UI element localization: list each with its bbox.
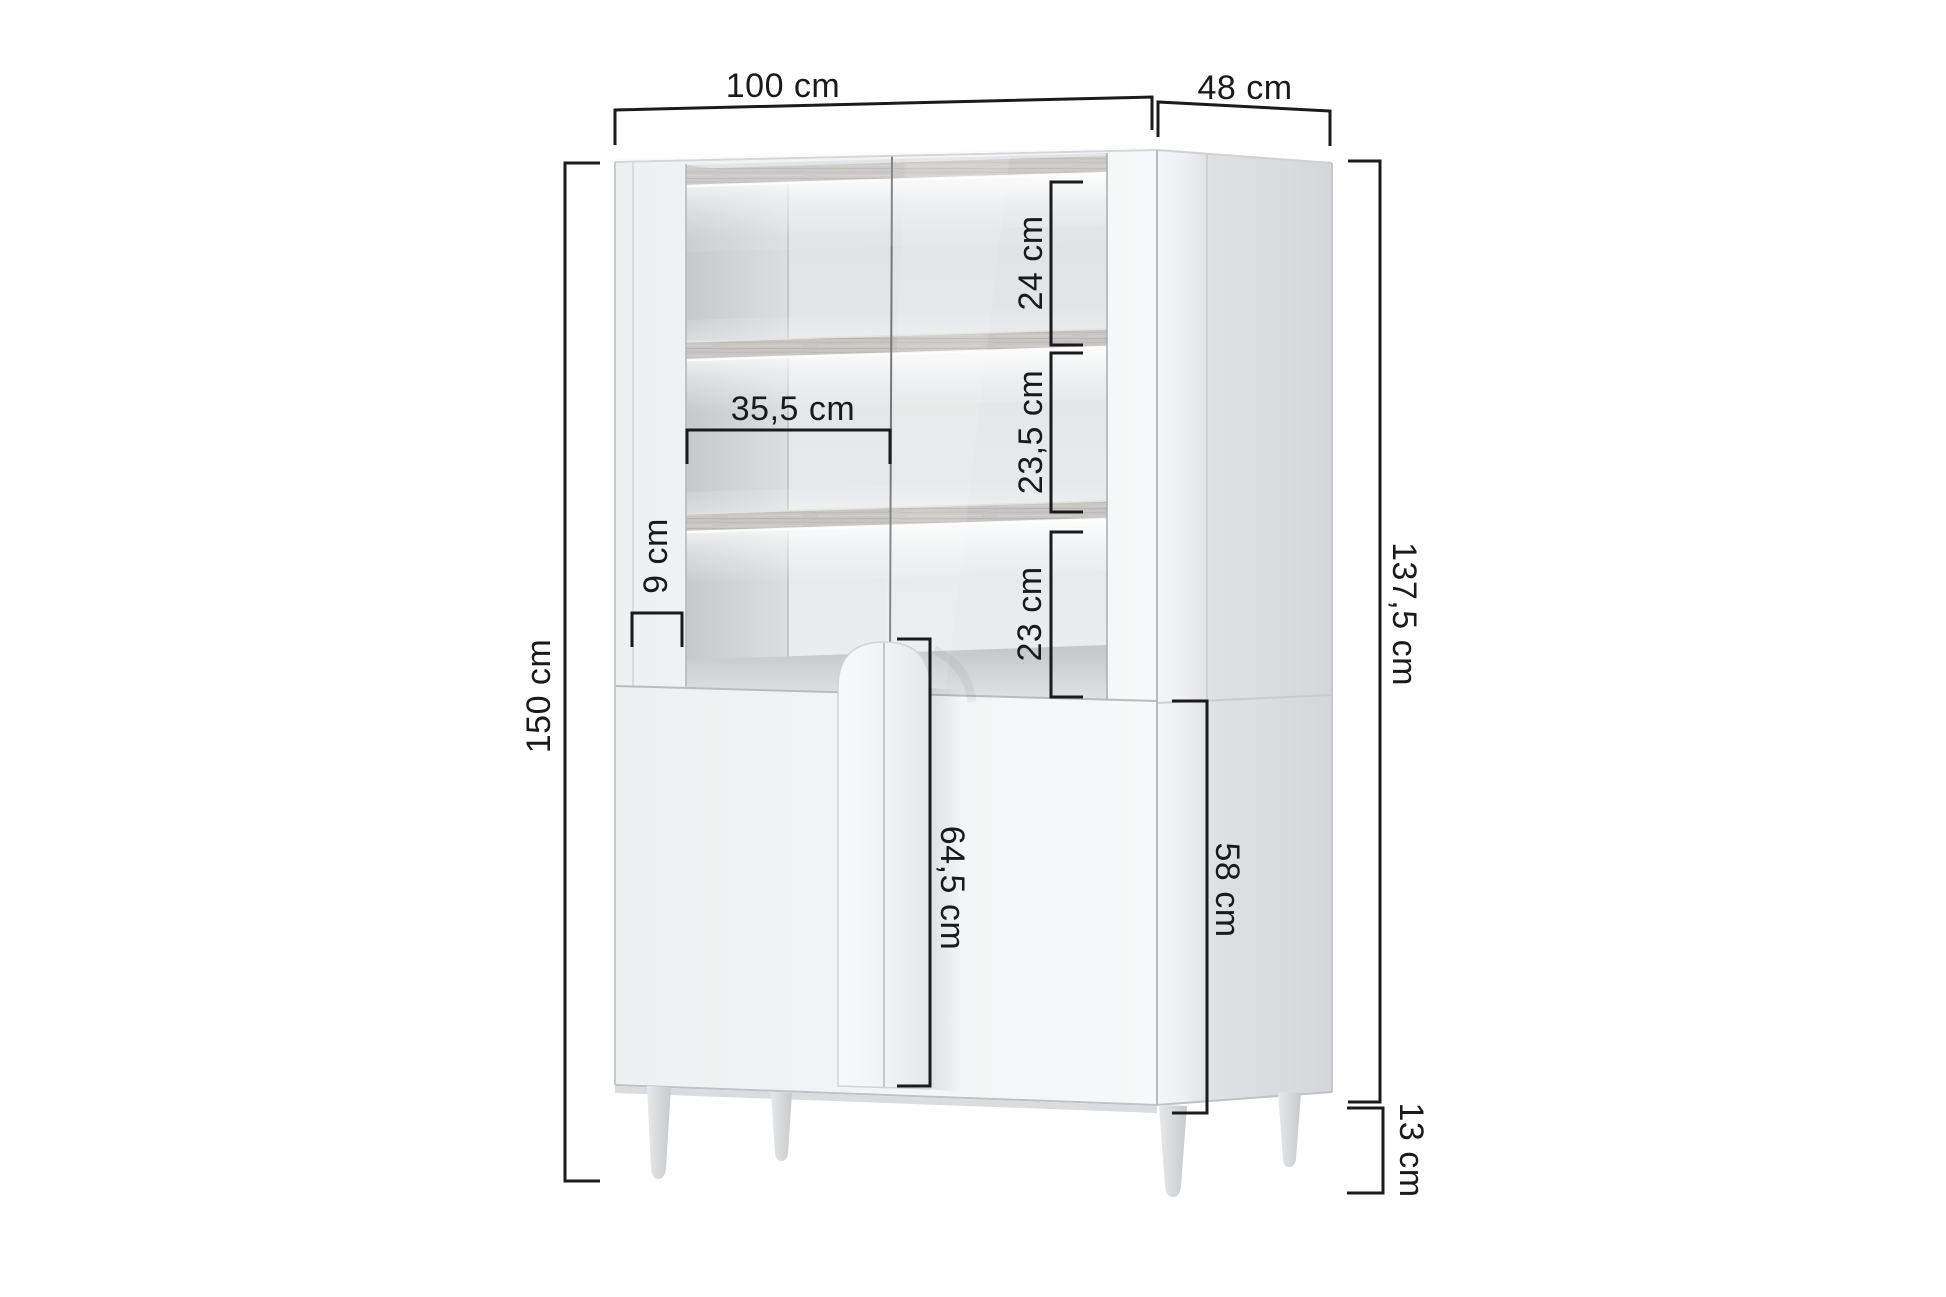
dim-door-height-label: 64,5 cm [933,826,971,950]
dim-side-frame-width-label: 9 cm [637,518,675,594]
dim-base-side-height-label: 58 cm [1208,842,1246,937]
dim-glass-door-width-label: 35,5 cm [731,390,855,428]
product-dimension-diagram: 100 cm 48 cm 150 cm 137,5 cm 13 cm 24 cm… [0,0,1946,1297]
cabinet-corner-edge [1157,150,1207,1105]
cabinet-illustration [615,148,1332,1197]
dim-middle-shelf-gap-label: 23,5 cm [1012,370,1050,494]
dim-body-height-label: 137,5 cm [1385,542,1423,686]
dim-total-width-label: 100 cm [726,67,841,105]
dim-total-height-label: 150 cm [520,639,558,754]
dim-top-shelf-gap-label: 24 cm [1012,215,1050,310]
dim-total-depth-label: 48 cm [1197,69,1292,107]
dim-leg-height-label: 13 cm [1392,1102,1430,1197]
lower-cabinet [615,642,1157,1105]
cabinet-dimension-illustration: 100 cm 48 cm 150 cm 137,5 cm 13 cm 24 cm… [0,0,1946,1297]
dim-bottom-shelf-gap-label: 23 cm [1011,566,1049,661]
